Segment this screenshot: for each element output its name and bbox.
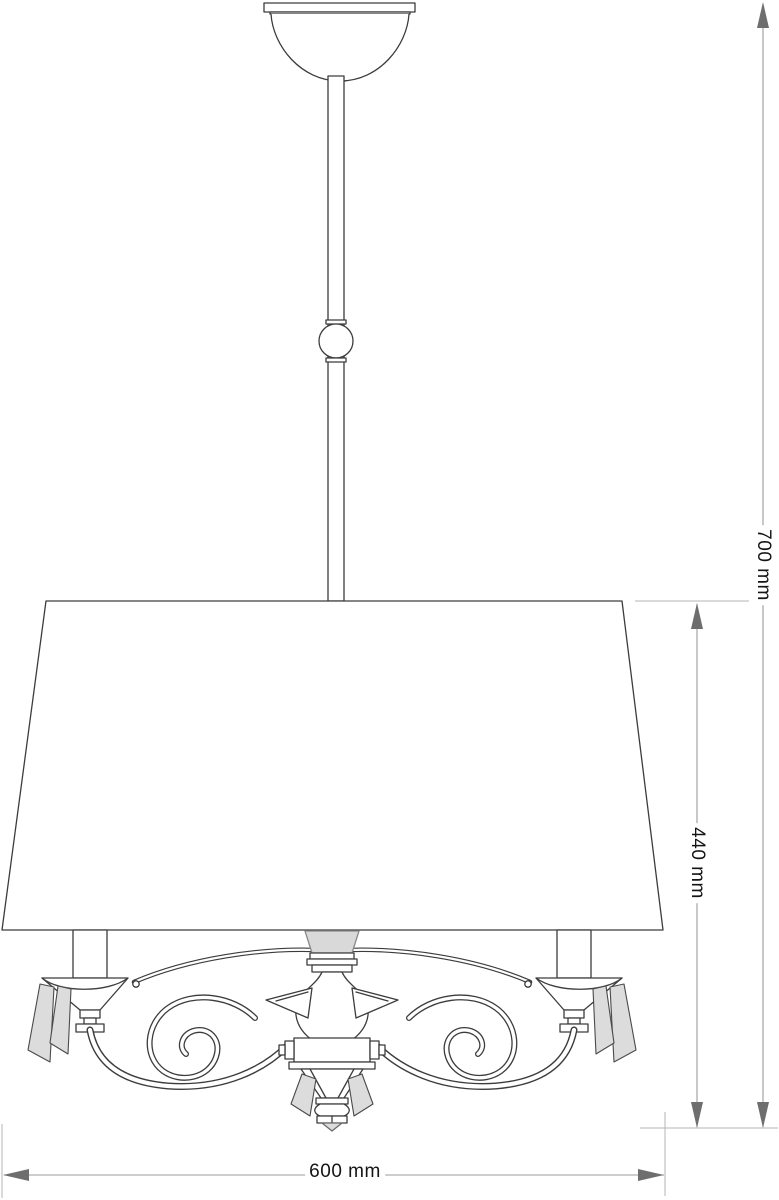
dimension-label-shade-width: 600 mm <box>305 1158 385 1186</box>
lamp-shade <box>2 601 663 930</box>
arrow-up-icon <box>691 603 703 629</box>
left-crystal-pendants <box>28 984 71 1062</box>
arrow-down-icon <box>757 1102 769 1128</box>
dimension-label-overall-height: 700 mm <box>749 525 777 605</box>
chandelier-technical-drawing <box>0 0 779 1200</box>
arm-hub <box>294 1038 370 1062</box>
technical-drawing-page: 700 mm 440 mm 600 mm <box>0 0 779 1200</box>
arrow-right-icon <box>638 1169 664 1181</box>
dimension-annotations <box>2 2 778 1198</box>
arrow-down-icon <box>691 1102 703 1128</box>
right-candle-sleeve <box>557 930 591 978</box>
ceiling-canopy <box>264 3 415 81</box>
dimension-label-body-height: 440 mm <box>683 823 711 903</box>
bottom-finial <box>315 1098 350 1131</box>
rod-ball <box>319 320 353 362</box>
arrow-up-icon <box>757 2 769 28</box>
central-column <box>266 931 398 1098</box>
left-scroll-arm <box>90 997 287 1086</box>
left-candle-sleeve <box>73 930 107 978</box>
right-scroll-arm <box>377 997 574 1086</box>
right-crystal-pendants <box>593 984 636 1062</box>
arrow-left-icon <box>3 1169 29 1181</box>
center-candle-shade <box>305 931 359 953</box>
